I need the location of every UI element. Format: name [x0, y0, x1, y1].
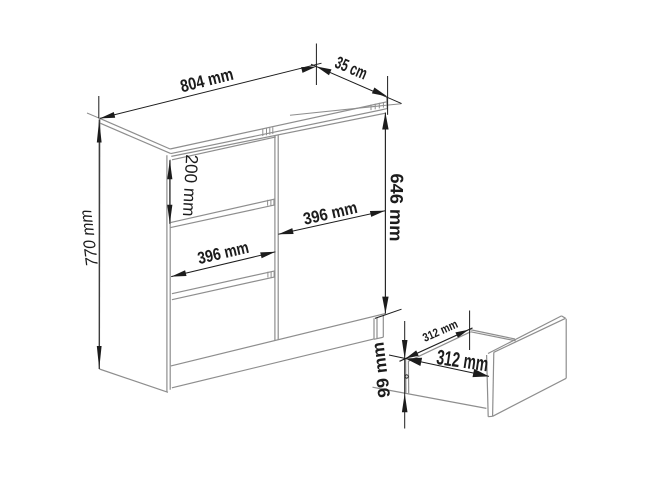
svg-text:200 mm: 200 mm [179, 154, 202, 217]
svg-text:646 mm: 646 mm [386, 173, 407, 241]
